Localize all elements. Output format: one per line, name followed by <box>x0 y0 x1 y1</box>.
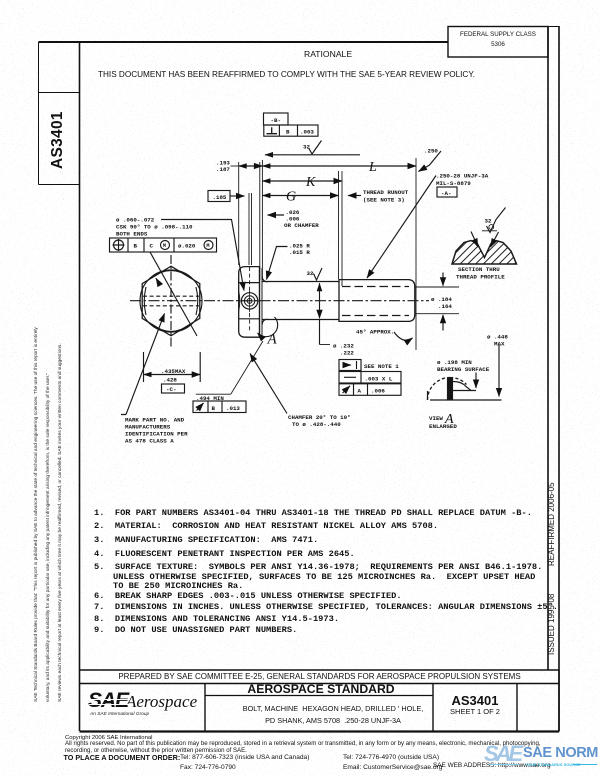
svg-text:G: G <box>286 190 296 205</box>
svg-text:-B-: -B- <box>271 117 281 124</box>
svg-text:BEARING SURFACE: BEARING SURFACE <box>437 366 490 373</box>
svg-text:B: B <box>134 242 138 249</box>
svg-text:CHAMFER 20° TO 10°: CHAMFER 20° TO 10° <box>288 414 351 421</box>
svg-text:A: A <box>267 332 278 348</box>
svg-text:.222: .222 <box>340 350 354 357</box>
svg-text:BOTH ENDS: BOTH ENDS <box>116 231 148 238</box>
svg-text:TO ø .428-.440: TO ø .428-.440 <box>292 421 341 428</box>
svg-text:.250: .250 <box>424 148 438 155</box>
svg-text:AS 478 CLASS A: AS 478 CLASS A <box>125 438 174 445</box>
svg-text:OR CHAMFER: OR CHAMFER <box>284 222 319 229</box>
svg-text:.013: .013 <box>226 405 240 412</box>
svg-text:-C-: -C- <box>166 386 176 393</box>
svg-text:ø .232: ø .232 <box>333 343 354 350</box>
svg-text:K: K <box>305 175 316 190</box>
svg-text:MANUFACTURERS: MANUFACTURERS <box>125 424 171 431</box>
svg-text:.164: .164 <box>438 303 452 310</box>
svg-text:.006: .006 <box>371 388 385 395</box>
svg-text:.187: .187 <box>216 166 230 173</box>
svg-text:.185: .185 <box>213 194 227 201</box>
svg-text:B: B <box>286 129 290 136</box>
svg-text:.003 X L: .003 X L <box>365 376 393 383</box>
svg-text:A: A <box>444 412 454 427</box>
svg-text:CSK 90° TO ø .098-.110: CSK 90° TO ø .098-.110 <box>116 224 193 231</box>
svg-text:MIL-S-8879: MIL-S-8879 <box>436 180 471 187</box>
svg-text:ø .060-.072: ø .060-.072 <box>116 217 155 224</box>
svg-text:32: 32 <box>485 218 492 225</box>
svg-text:.435MAX: .435MAX <box>161 368 186 375</box>
svg-text:45° APPROX.: 45° APPROX. <box>356 329 394 336</box>
svg-text:MARK PART NO. AND: MARK PART NO. AND <box>125 417 185 424</box>
svg-text:.428: .428 <box>163 377 177 384</box>
svg-text:ø .184: ø .184 <box>431 296 452 303</box>
svg-text:C: C <box>150 242 154 249</box>
svg-text:VIEW: VIEW <box>429 415 443 422</box>
svg-text:ø.020: ø.020 <box>178 242 196 249</box>
svg-text:B: B <box>212 405 216 412</box>
svg-text:.494 MIN: .494 MIN <box>196 395 224 402</box>
svg-text:(SEE NOTE 3): (SEE NOTE 3) <box>363 197 405 204</box>
svg-text:.003: .003 <box>300 129 314 136</box>
svg-text:.015 R: .015 R <box>289 249 310 256</box>
svg-text:MAX: MAX <box>494 341 505 348</box>
svg-text:IDENTIFICATION PER: IDENTIFICATION PER <box>125 431 188 438</box>
svg-text:M: M <box>206 243 209 249</box>
svg-text:THREAD RUNOUT: THREAD RUNOUT <box>363 189 409 196</box>
svg-text:ø .198 MIN: ø .198 MIN <box>437 359 472 366</box>
svg-text:A: A <box>358 388 362 395</box>
svg-text:32: 32 <box>307 270 314 277</box>
svg-text:M: M <box>163 243 166 249</box>
svg-text:.250-28 UNJF-3A: .250-28 UNJF-3A <box>436 173 489 180</box>
svg-text:L: L <box>368 160 377 175</box>
svg-text:THREAD PROFILE: THREAD PROFILE <box>456 274 505 281</box>
svg-text:ø .448: ø .448 <box>487 334 508 341</box>
svg-text:SECTION THRU: SECTION THRU <box>458 266 500 273</box>
svg-text:SEE NOTE 1: SEE NOTE 1 <box>364 363 399 370</box>
svg-text:-A-: -A- <box>441 190 451 197</box>
svg-text:32: 32 <box>303 144 310 151</box>
